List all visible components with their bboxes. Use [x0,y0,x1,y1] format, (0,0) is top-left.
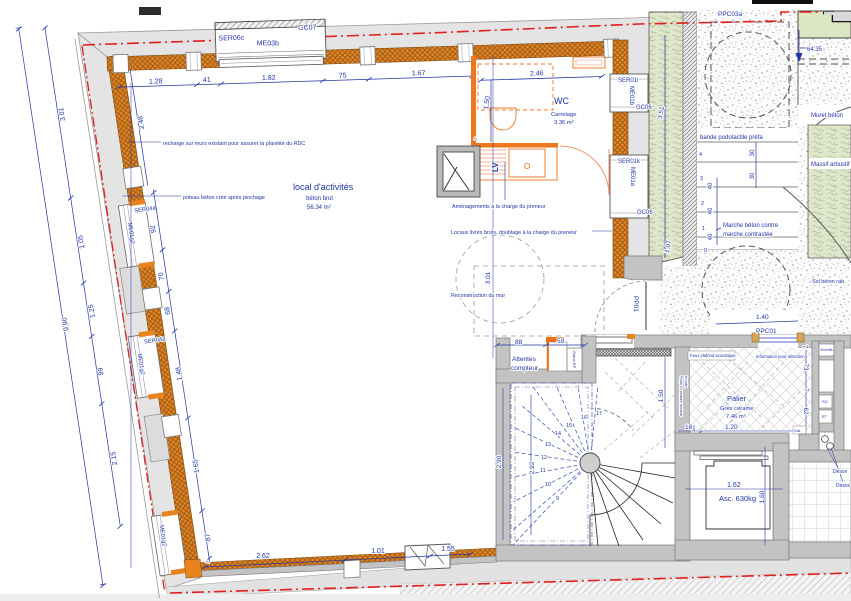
svg-text:PP01: PP01 [632,296,639,312]
svg-text:88: 88 [515,339,523,346]
svg-text:40: 40 [708,233,714,240]
svg-text:SER01l: SER01l [618,78,638,84]
svg-text:1.55: 1.55 [441,546,455,553]
svg-text:ME01a: ME01a [629,167,635,187]
svg-text:local d'activités: local d'activités [293,182,354,192]
svg-text:Muret béton: Muret béton [811,113,843,119]
svg-text:68: 68 [164,306,172,315]
svg-text:3.36 m²: 3.36 m² [554,120,574,126]
svg-text:Aménagements à la charge du pr: Aménagements à la charge du preneur [452,204,546,210]
svg-text:2: 2 [701,201,704,207]
svg-text:Marche béton contre: Marche béton contre [723,223,779,229]
svg-text:marche contrastée: marche contrastée [723,232,773,238]
svg-text:1.67: 1.67 [412,70,426,77]
svg-text:Grès cérame: Grès cérame [720,406,754,412]
svg-text:SG: SG [822,399,828,404]
svg-text:40: 40 [708,182,714,189]
svg-text:à code: à code [684,376,688,387]
svg-text:0: 0 [704,248,707,254]
svg-text:compteur: compteur [511,365,539,372]
svg-text:bande podotactile préfa: bande podotactile préfa [700,135,763,141]
svg-text:16: 16 [581,415,587,421]
svg-text:73: 73 [802,364,808,371]
svg-text:70: 70 [158,272,166,281]
svg-text:62: 62 [802,408,808,415]
svg-text:14: 14 [555,431,561,437]
svg-text:Gai.: Gai. [794,428,801,433]
svg-text:PPC03a: PPC03a [718,11,743,18]
svg-text:7.46 m²: 7.46 m² [726,414,746,420]
svg-text:30: 30 [750,149,756,156]
svg-text:2.92: 2.92 [529,461,536,474]
svg-text:13: 13 [545,442,551,448]
svg-text:59: 59 [557,338,565,345]
svg-text:3: 3 [700,176,703,182]
svg-text:1.62: 1.62 [727,482,741,489]
svg-text:Carrelage: Carrelage [551,112,576,118]
svg-text:Porte EI serrure secteur: Porte EI serrure secteur [679,376,683,417]
svg-text:Asc. 630kg: Asc. 630kg [719,494,756,503]
svg-text:56.34 m²: 56.34 m² [307,205,331,211]
svg-text:1.40: 1.40 [756,314,769,321]
svg-text:1.50: 1.50 [658,389,665,402]
svg-text:12: 12 [541,455,547,461]
svg-text:41: 41 [203,77,211,84]
svg-text:2.46: 2.46 [530,70,544,77]
svg-text:Faux plafond acoustique: Faux plafond acoustique [690,353,736,358]
svg-text:11: 11 [540,468,546,474]
svg-text:Information pour détection: Information pour détection [756,354,805,359]
svg-text:recharge sur murs existant pou: recharge sur murs existant pour assurer … [163,141,305,147]
svg-text:2.62: 2.62 [256,553,270,560]
svg-text:ME01b: ME01b [628,86,634,106]
svg-text:Massif arbustif: Massif arbustif [811,162,850,168]
svg-text:1.01: 1.01 [371,548,385,555]
svg-text:Locaux livrés bruts, doublage: Locaux livrés bruts, doublage à la charg… [451,230,577,236]
svg-text:1.82: 1.82 [262,75,276,82]
svg-text:GC07: GC07 [298,24,317,32]
svg-text:4: 4 [699,152,702,158]
svg-text:10: 10 [545,482,551,488]
svg-text:1.20: 1.20 [725,424,738,431]
svg-text:15: 15 [566,423,572,429]
svg-text:30: 30 [750,172,756,179]
svg-text:béton brut: béton brut [306,196,333,202]
svg-text:1: 1 [702,226,705,232]
svg-text:SER06c: SER06c [218,35,244,43]
svg-text:75: 75 [339,72,347,79]
svg-text:Desce: Desce [836,483,850,489]
svg-text:poteau béton créé après piocha: poteau béton créé après piochage [183,195,265,201]
svg-text:GC06: GC06 [636,105,652,111]
svg-text:9: 9 [556,496,559,502]
svg-text:64.35: 64.35 [807,47,823,53]
svg-text:87: 87 [204,533,212,542]
svg-text:40: 40 [708,207,714,214]
svg-text:LV: LV [491,162,500,172]
svg-text:ET: ET [822,414,828,419]
svg-text:Desce: Desce [833,469,847,475]
svg-text:3.01: 3.01 [485,271,492,284]
svg-text:Gaine EP: Gaine EP [572,351,577,368]
svg-text:1.28: 1.28 [149,78,163,85]
svg-text:99: 99 [97,367,105,376]
svg-text:Reconstruction du mur: Reconstruction du mur [451,293,505,299]
svg-text:Palier: Palier [727,394,747,403]
svg-text:WC: WC [554,96,569,106]
svg-text:SER01k: SER01k [618,159,641,165]
svg-text:Enedis: Enedis [821,347,833,352]
svg-text:18: 18 [685,424,693,431]
svg-text:ME03b: ME03b [257,40,279,47]
svg-text:GC06: GC06 [637,210,653,216]
svg-text:Sol béton rab.: Sol béton rab. [812,279,846,285]
svg-text:92: 92 [150,224,158,233]
svg-text:Attentes: Attentes [512,356,537,363]
svg-text:17: 17 [596,411,602,417]
svg-text:2.90: 2.90 [496,455,503,468]
svg-text:PPC01: PPC01 [756,328,777,335]
